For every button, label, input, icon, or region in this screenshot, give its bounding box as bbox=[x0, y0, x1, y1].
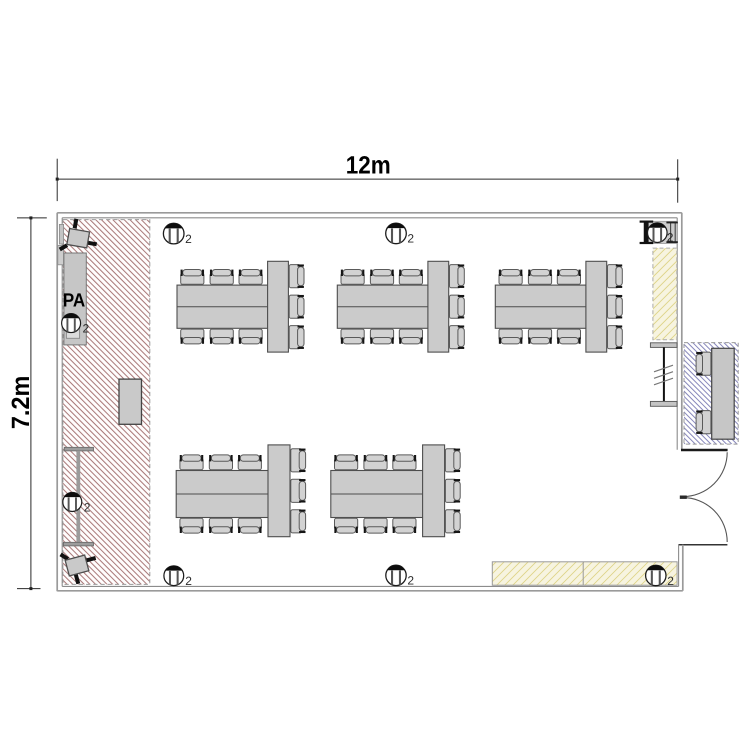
svg-text:2: 2 bbox=[667, 574, 674, 588]
svg-text:2: 2 bbox=[407, 232, 414, 246]
svg-text:2: 2 bbox=[185, 574, 192, 588]
svg-text:7.2m: 7.2m bbox=[7, 376, 35, 430]
svg-text:2: 2 bbox=[667, 231, 674, 245]
svg-text:2: 2 bbox=[84, 500, 91, 514]
svg-text:12m: 12m bbox=[346, 151, 391, 179]
svg-text:PA: PA bbox=[63, 290, 86, 311]
svg-text:2: 2 bbox=[185, 232, 192, 246]
svg-text:2: 2 bbox=[83, 321, 90, 335]
svg-text:2: 2 bbox=[407, 574, 414, 588]
